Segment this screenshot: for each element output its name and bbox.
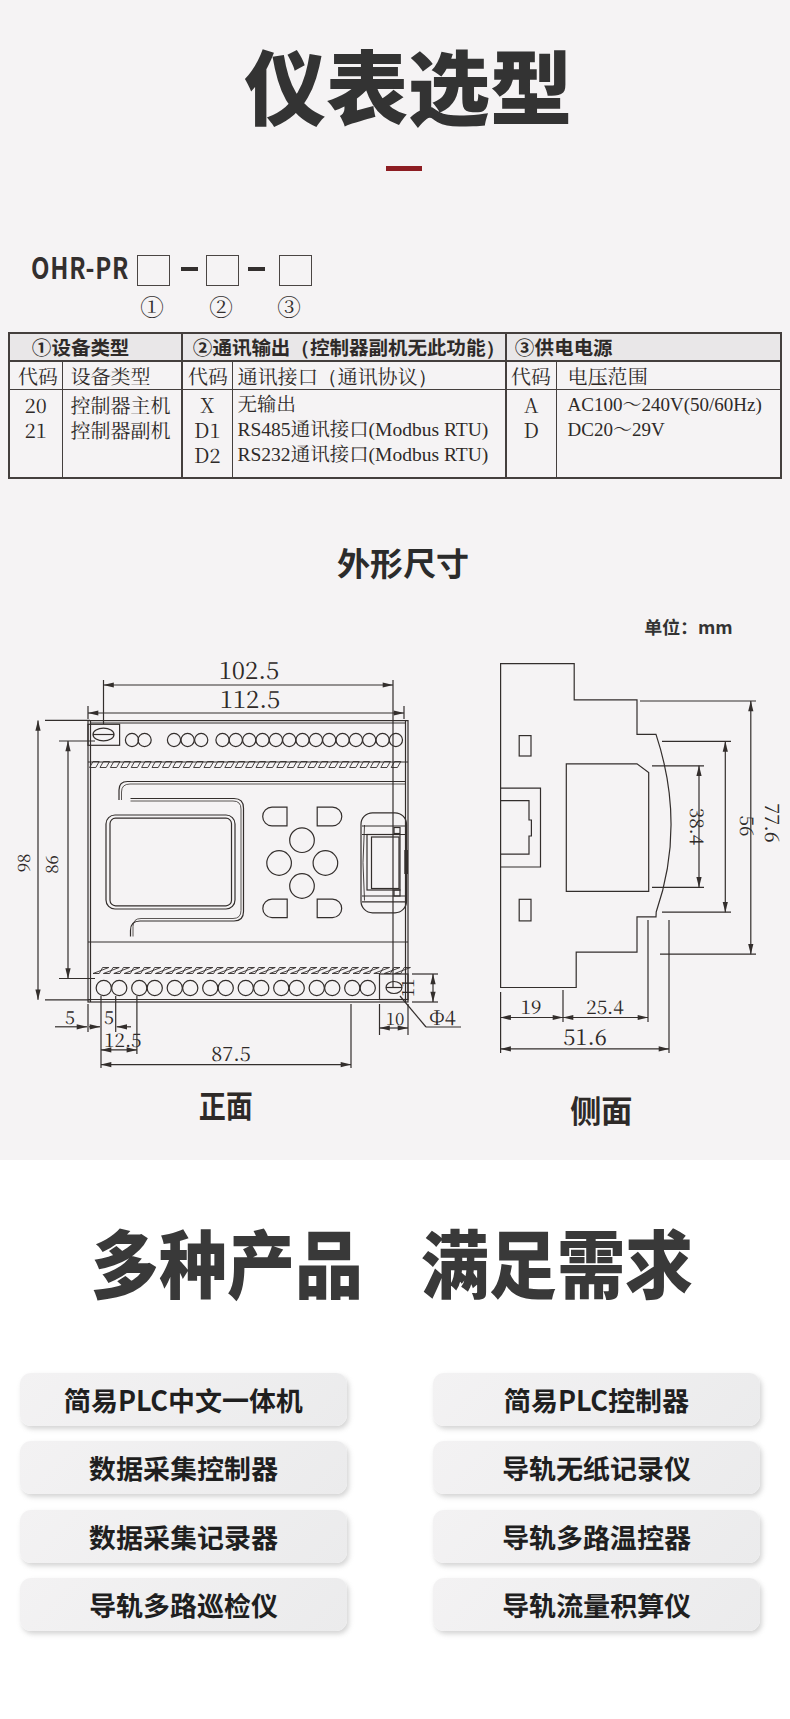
svg-text:12.5: 12.5 bbox=[104, 1025, 142, 1052]
svg-text:86: 86 bbox=[38, 855, 63, 874]
svg-text:38.4: 38.4 bbox=[685, 808, 712, 846]
svg-text:56: 56 bbox=[735, 816, 762, 837]
svg-text:77.6: 77.6 bbox=[759, 803, 788, 843]
svg-text:Φ4: Φ4 bbox=[429, 1002, 456, 1031]
svg-text:51.6: 51.6 bbox=[563, 1020, 607, 1051]
svg-text:25.4: 25.4 bbox=[586, 992, 624, 1019]
svg-text:112.5: 112.5 bbox=[220, 680, 281, 715]
svg-text:98: 98 bbox=[10, 854, 35, 873]
svg-text:19: 19 bbox=[521, 992, 542, 1019]
svg-text:87.5: 87.5 bbox=[211, 1038, 251, 1067]
svg-text:10: 10 bbox=[386, 1005, 405, 1030]
svg-text:11: 11 bbox=[394, 979, 419, 998]
svg-text:5: 5 bbox=[65, 1003, 75, 1029]
